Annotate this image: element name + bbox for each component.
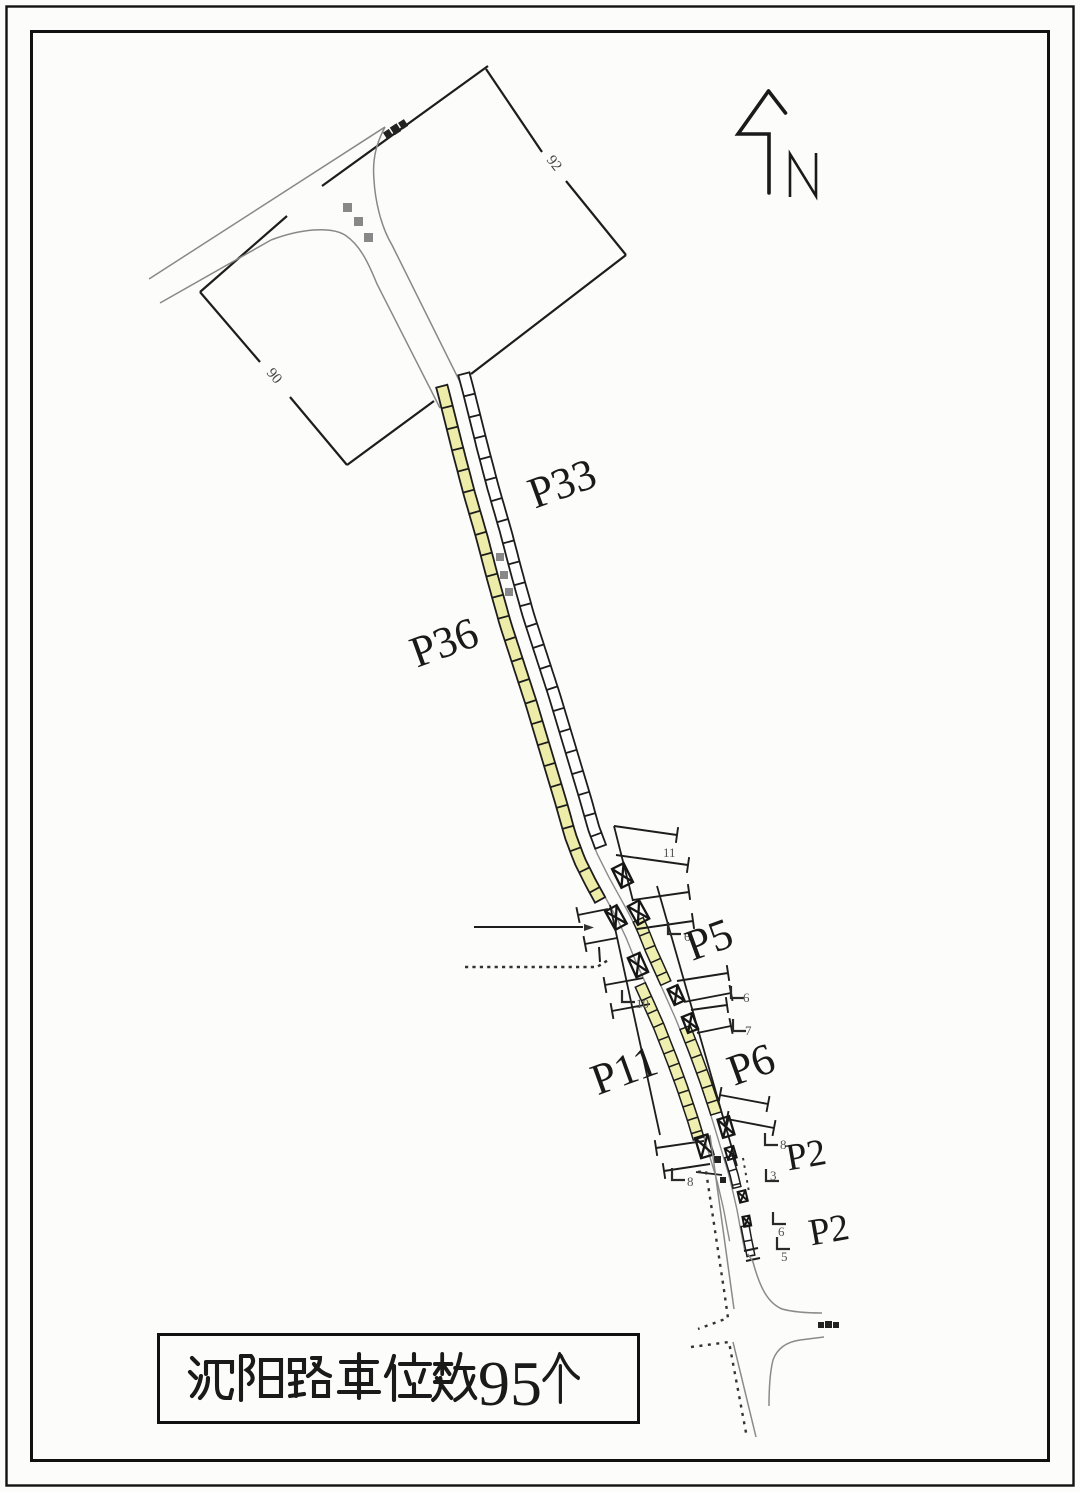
- svg-text:11: 11: [663, 845, 676, 860]
- svg-text:P2: P2: [806, 1206, 853, 1254]
- svg-text:5: 5: [781, 1249, 788, 1264]
- svg-text:95: 95: [478, 1348, 542, 1419]
- svg-text:P2: P2: [783, 1131, 830, 1179]
- svg-text:10: 10: [636, 996, 649, 1011]
- svg-text:3: 3: [770, 1168, 777, 1183]
- svg-text:6: 6: [778, 1224, 785, 1239]
- svg-text:6: 6: [743, 990, 750, 1005]
- svg-text:8: 8: [687, 1174, 694, 1189]
- svg-text:7: 7: [745, 1023, 752, 1038]
